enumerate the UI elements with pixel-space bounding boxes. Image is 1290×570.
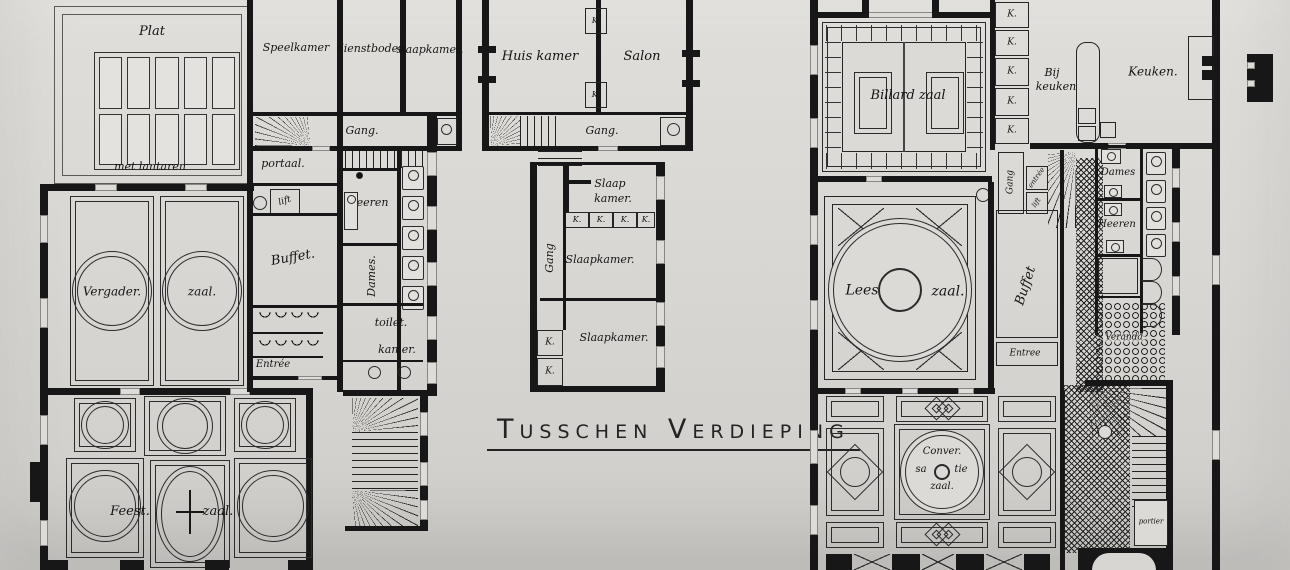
window-gap bbox=[1172, 222, 1180, 242]
closet-label-k: K. bbox=[573, 216, 582, 224]
coat-rack bbox=[257, 340, 321, 352]
ceiling-circle bbox=[237, 470, 309, 542]
wall-segment bbox=[686, 0, 693, 150]
room-label-slaapkamer: slaapkamer. bbox=[396, 44, 463, 56]
wc-bowl bbox=[667, 123, 680, 136]
wall-segment bbox=[540, 298, 657, 301]
window-gap bbox=[810, 300, 818, 330]
closet-label-k: K. bbox=[1007, 10, 1017, 19]
closet-label-k: K. bbox=[545, 338, 555, 347]
ceiling-circle-center bbox=[934, 464, 950, 480]
coffer-ticks bbox=[826, 153, 982, 169]
wall-pier bbox=[956, 554, 984, 570]
wall-segment bbox=[1095, 198, 1140, 201]
ceiling-panel bbox=[998, 522, 1056, 548]
closet-label-k: K. bbox=[592, 17, 601, 25]
corridor-label-gang: Gang. bbox=[346, 125, 379, 137]
wall-pier bbox=[1024, 554, 1050, 570]
washbasin bbox=[1104, 185, 1122, 198]
wall-segment bbox=[1085, 380, 1173, 386]
washbasin bbox=[1104, 203, 1122, 216]
kitchen-table bbox=[1100, 122, 1116, 138]
corridor-label-gang-vertical: Gang bbox=[544, 243, 556, 272]
staircase-fan bbox=[490, 116, 520, 146]
door-gap bbox=[902, 388, 918, 394]
closet-label-k: K. bbox=[1007, 67, 1017, 76]
wall-segment bbox=[249, 376, 343, 380]
wc-fixture bbox=[1146, 152, 1166, 175]
door-gap bbox=[95, 184, 117, 191]
room-label-buffet: Buffet. bbox=[270, 247, 316, 268]
room-label-plat: Plat bbox=[139, 25, 165, 39]
door-gap bbox=[868, 12, 936, 18]
window-gap bbox=[427, 152, 437, 176]
closet-label-k: K. bbox=[1007, 126, 1017, 135]
room-label-salon: Salon bbox=[623, 50, 660, 64]
wc-fixture bbox=[402, 286, 424, 310]
coffer-ticks bbox=[825, 42, 841, 152]
floor-plan: Plat met lantaren Vergader. zaal. Feest.… bbox=[0, 0, 1290, 570]
room-label-lees-zaal: zaal. bbox=[932, 285, 965, 300]
wall-segment bbox=[563, 165, 566, 330]
window-gap bbox=[40, 215, 48, 243]
wall-segment bbox=[44, 184, 254, 191]
anteroom-cell bbox=[1098, 258, 1138, 294]
wall-pier bbox=[826, 554, 852, 570]
floor-brace bbox=[986, 554, 1022, 570]
room-label-lees: Lees bbox=[845, 284, 878, 299]
wall-segment bbox=[862, 0, 869, 18]
wall-segment bbox=[44, 388, 312, 395]
room-label-keuken: Keuken. bbox=[1128, 66, 1177, 79]
room-label-heeren: Heeren bbox=[1098, 220, 1136, 231]
wall-segment bbox=[343, 168, 399, 171]
wall-pier bbox=[682, 80, 700, 87]
staircase-fan bbox=[352, 490, 418, 526]
closet-label-k: K. bbox=[1007, 97, 1017, 106]
window-gap bbox=[656, 346, 665, 368]
wall-segment bbox=[343, 243, 399, 246]
wall-segment bbox=[400, 0, 406, 116]
corridor-label-gang-vertical: Gang bbox=[1006, 170, 1015, 194]
wall-segment bbox=[253, 356, 323, 358]
floor-brace bbox=[922, 554, 954, 570]
stall-arc bbox=[1142, 281, 1162, 304]
wall-segment bbox=[988, 182, 994, 392]
room-label-dames: Dames bbox=[1101, 168, 1136, 179]
window-gap bbox=[1172, 276, 1180, 296]
page-title: Tusschen Verdieping bbox=[487, 414, 860, 451]
window-gap bbox=[427, 206, 437, 230]
edge-block-slit bbox=[1247, 80, 1255, 87]
wc-fixture bbox=[402, 256, 424, 280]
wall-pier bbox=[30, 462, 44, 502]
wall-segment bbox=[1098, 296, 1140, 298]
ceiling-circle bbox=[157, 398, 213, 454]
room-label-bij-keuken: keuken bbox=[1036, 81, 1077, 93]
window-gap bbox=[40, 415, 48, 445]
wall-segment bbox=[482, 0, 489, 150]
kitchen-dresser-cell bbox=[1078, 108, 1096, 124]
window-gap bbox=[427, 316, 437, 340]
wall-segment bbox=[810, 0, 818, 570]
window-gap bbox=[420, 412, 428, 436]
stair-newel bbox=[1098, 425, 1112, 439]
wall-segment bbox=[932, 0, 939, 18]
closet-label-k: K. bbox=[545, 367, 555, 376]
window-gap bbox=[40, 520, 48, 546]
staircase-fan bbox=[255, 117, 310, 146]
room-label-vergader-zaal: zaal. bbox=[188, 286, 216, 299]
wc-fixture bbox=[402, 226, 424, 250]
window-gap bbox=[810, 215, 818, 245]
wc-fixture bbox=[402, 196, 424, 220]
wall-segment bbox=[489, 112, 687, 115]
window-gap bbox=[810, 45, 818, 75]
basin-round bbox=[368, 366, 381, 379]
door-gap bbox=[312, 146, 330, 151]
range-grate bbox=[1202, 56, 1214, 66]
washbasin bbox=[1101, 149, 1121, 164]
room-label-portaal: portaal. bbox=[261, 158, 304, 170]
room-label-met-lantaren: met lantaren bbox=[114, 161, 186, 173]
wall-pier bbox=[288, 560, 312, 570]
closet-label-k: K. bbox=[642, 216, 651, 224]
wall-segment bbox=[482, 146, 693, 151]
floor-brace bbox=[854, 554, 890, 570]
stove-dot bbox=[356, 172, 363, 179]
room-label-billard-zaal: Billard zaal bbox=[871, 89, 946, 103]
wall-segment bbox=[1095, 254, 1140, 257]
wall-segment bbox=[343, 303, 423, 306]
room-label-conver-tie: tie bbox=[954, 465, 967, 476]
wc-fixture bbox=[1146, 207, 1166, 230]
ceiling-panel bbox=[998, 396, 1056, 422]
room-label-huiskamer: Huis kamer bbox=[502, 50, 579, 64]
room-label-slaap-kamer: kamer. bbox=[594, 193, 632, 205]
wall-pier bbox=[120, 560, 144, 570]
washstand bbox=[344, 192, 358, 230]
wall-segment bbox=[530, 162, 537, 392]
coffer-ticks bbox=[826, 25, 982, 41]
veranda-floor bbox=[1095, 302, 1165, 384]
ceiling-circle bbox=[241, 401, 289, 449]
coffer-ticks bbox=[967, 42, 983, 152]
room-label-toilet-kamer: kamer. bbox=[378, 344, 416, 356]
room-label-feest-zaal: zaal. bbox=[203, 505, 234, 519]
ceiling-circle-center bbox=[878, 268, 922, 312]
wall-segment bbox=[253, 183, 341, 186]
door-gap bbox=[866, 176, 882, 182]
room-label-entree: Entree bbox=[1010, 349, 1041, 358]
edge-block-slit bbox=[1247, 62, 1255, 69]
wall-pier bbox=[892, 554, 920, 570]
washbasin bbox=[1106, 240, 1124, 253]
room-label-dienstboden: dienstboden bbox=[337, 43, 406, 55]
room-label-slaap: Slaap bbox=[594, 178, 625, 190]
wall-segment bbox=[530, 386, 665, 392]
cross-mark bbox=[176, 511, 204, 513]
basin-round bbox=[398, 366, 411, 379]
window-gap bbox=[656, 240, 665, 264]
wall-segment bbox=[810, 176, 992, 182]
arch-opening bbox=[1092, 553, 1156, 570]
wall-segment bbox=[253, 332, 323, 334]
ceiling-panel bbox=[826, 396, 884, 422]
wc-fixture bbox=[1146, 234, 1166, 257]
skylight-grid bbox=[94, 52, 240, 170]
room-label-conver-zaal: zaal. bbox=[930, 482, 954, 493]
wall-pier bbox=[682, 50, 700, 57]
wall-pier bbox=[478, 76, 496, 83]
door-gap bbox=[598, 146, 618, 151]
kitchen-dresser-cell bbox=[1078, 126, 1096, 141]
window-gap bbox=[420, 500, 428, 520]
window-gap bbox=[40, 298, 48, 328]
room-label-bij: Bij bbox=[1044, 67, 1059, 79]
closet-label-k: K. bbox=[597, 216, 606, 224]
window-gap bbox=[1212, 255, 1220, 285]
wall-segment bbox=[253, 305, 341, 308]
window-gap bbox=[1172, 168, 1180, 188]
closet-label-k: K. bbox=[621, 216, 630, 224]
kitchen-range bbox=[1188, 36, 1214, 100]
wall-segment bbox=[343, 360, 423, 362]
room-label-dames: Dames. bbox=[366, 255, 378, 296]
wc-bowl bbox=[441, 124, 452, 135]
room-label-veranda: Veranda bbox=[1103, 333, 1145, 342]
wall-segment bbox=[537, 162, 657, 165]
wall-segment bbox=[1060, 150, 1064, 390]
window-gap bbox=[656, 176, 665, 200]
ceiling-panel bbox=[826, 522, 884, 548]
door-gap bbox=[185, 184, 207, 191]
room-label-conver-sa: sa bbox=[915, 465, 926, 476]
room-label-slaapkamer: Slaapkamer. bbox=[580, 332, 649, 344]
corridor-label-gang: Gang. bbox=[586, 125, 619, 137]
window-gap bbox=[810, 118, 818, 148]
ceiling-circle bbox=[81, 401, 129, 449]
closet-label-k: K. bbox=[1007, 38, 1017, 47]
wall-pier bbox=[205, 560, 229, 570]
range-grate bbox=[1202, 70, 1214, 80]
wc-fixture bbox=[402, 166, 424, 190]
wc-fixture bbox=[1146, 180, 1166, 203]
window-gap bbox=[810, 505, 818, 535]
room-label-feest: Feest. bbox=[110, 505, 150, 519]
room-label-toilet: toilet. bbox=[375, 317, 408, 329]
staircase-flight bbox=[520, 116, 560, 146]
wall-segment bbox=[337, 0, 343, 116]
closet-label-k: K. bbox=[592, 91, 601, 99]
wall-segment bbox=[337, 112, 343, 392]
room-label-vergader: Vergader. bbox=[83, 286, 141, 299]
room-label-portier: portier bbox=[1139, 518, 1164, 525]
wall-pier bbox=[478, 46, 496, 53]
stall-arc bbox=[1142, 258, 1162, 281]
wall-segment bbox=[253, 213, 341, 216]
staircase-fan bbox=[352, 398, 418, 432]
door-gap bbox=[298, 376, 322, 380]
room-label-slaapkamer: Slaapkamer. bbox=[566, 254, 635, 266]
window-gap bbox=[420, 462, 428, 486]
coat-rack bbox=[257, 312, 321, 324]
window-gap bbox=[427, 362, 437, 384]
room-label-conver: Conver. bbox=[923, 447, 962, 458]
door-gap bbox=[845, 388, 861, 394]
wall-pier bbox=[44, 560, 68, 570]
window-gap bbox=[656, 302, 665, 326]
room-label-entree: Entrée bbox=[256, 360, 290, 371]
window-gap bbox=[810, 430, 818, 464]
basin-round bbox=[253, 196, 267, 210]
window-gap bbox=[1212, 430, 1220, 460]
door-gap bbox=[958, 388, 974, 394]
wall-segment bbox=[345, 526, 428, 531]
wall-segment bbox=[565, 180, 591, 184]
staircase-flight bbox=[352, 432, 418, 490]
window-gap bbox=[427, 262, 437, 286]
door-gap bbox=[120, 388, 140, 395]
room-label-speelkamer: Speelkamer bbox=[263, 42, 330, 54]
